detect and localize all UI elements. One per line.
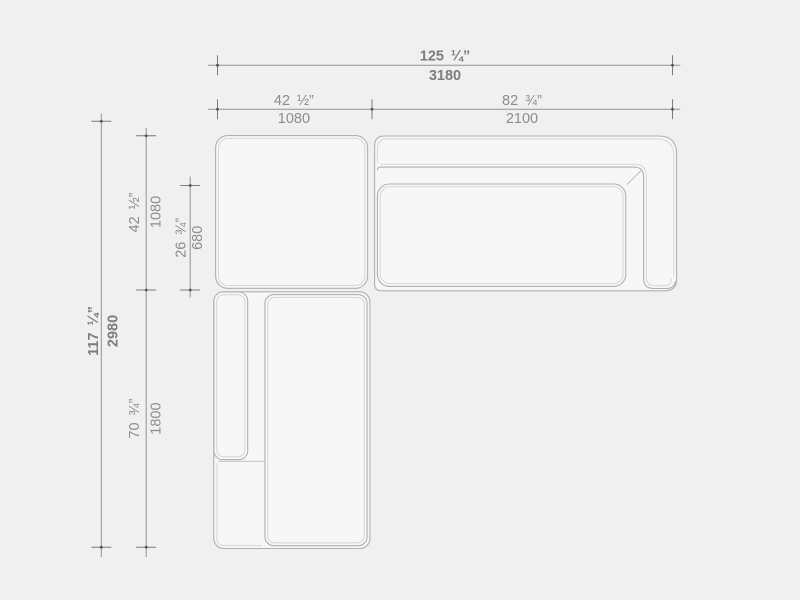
- svg-text:1080: 1080: [278, 111, 310, 127]
- svg-text:42 ½”: 42 ½”: [127, 192, 143, 232]
- svg-text:117 ¼”: 117 ¼”: [86, 306, 102, 356]
- svg-text:26 ¾”: 26 ¾”: [173, 218, 189, 258]
- svg-text:82 ¾”: 82 ¾”: [502, 93, 542, 109]
- svg-text:2100: 2100: [506, 111, 538, 127]
- svg-text:125 ¼”: 125 ¼”: [420, 49, 470, 65]
- svg-text:680: 680: [190, 226, 206, 250]
- svg-text:70 ¾”: 70 ¾”: [127, 398, 143, 438]
- svg-text:1080: 1080: [148, 196, 164, 228]
- svg-text:42 ½”: 42 ½”: [274, 93, 314, 109]
- svg-text:2980: 2980: [105, 315, 121, 347]
- svg-text:3180: 3180: [429, 68, 461, 84]
- svg-text:1800: 1800: [148, 402, 164, 434]
